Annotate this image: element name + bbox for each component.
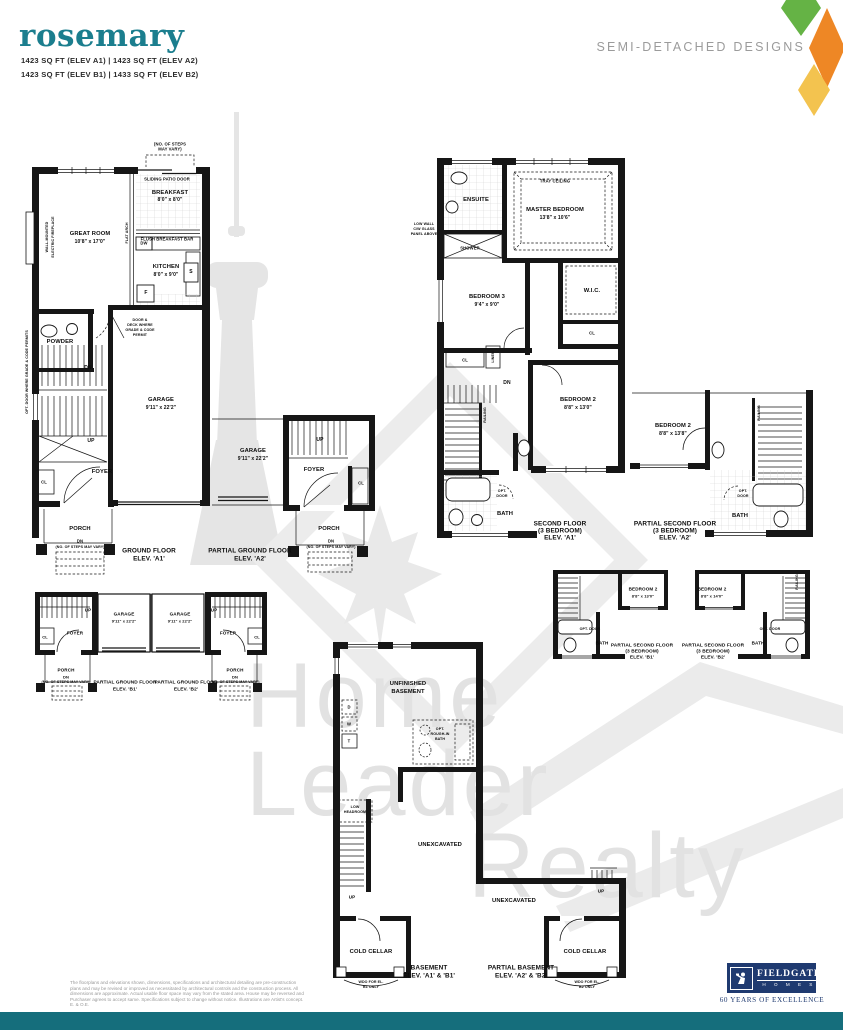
room-dim-great-room: 10'8" x 17'0" [75, 239, 106, 245]
fireplace-note: WALL-MOUNTED [45, 222, 49, 253]
porch-dn-label: DN [63, 675, 69, 680]
room-label-ensuite: ENSUITE [463, 197, 489, 203]
room-dim-bedroom2: 8'8" x 13'8" [659, 431, 687, 437]
rough-in-note: BATH [435, 737, 445, 741]
low-headroom-note: LOW [351, 805, 360, 809]
room-dim-garage: 9'11" x 22'2" [112, 619, 137, 624]
room-dim-bedroom2: 8'8" x 13'0" [564, 405, 592, 411]
room-dim-garage: 9'11" x 22'2" [146, 405, 176, 411]
porch-steps-note: (NO. OF STEPS MAY VARY) [55, 545, 104, 549]
deck-note: GRADE & CODE [125, 328, 154, 332]
wdo-note: WDO FOR EL. [574, 980, 599, 984]
up-label: UP [87, 438, 94, 444]
opt-door-label: DOOR [737, 494, 748, 498]
plan-caption: PARTIAL SECOND FLOOR [682, 644, 744, 649]
room-label-great-room: GREAT ROOM [70, 231, 111, 237]
plan-caption: PARTIAL GROUND FLOOR [208, 548, 291, 555]
room-label-powder: POWDER [47, 339, 74, 345]
low-wall-note: LOW WALL [414, 222, 434, 226]
room-label-bath: BATH [752, 641, 765, 646]
room-label-porch: PORCH [57, 668, 74, 673]
plan-caption: ELEV. 'A2' [234, 556, 266, 563]
tray-ceiling-label: TRAY CEILING [540, 179, 570, 184]
steps-note: MAY VARY) [158, 147, 181, 152]
plan-caption: BASEMENT [411, 965, 448, 972]
opt-door-label: OPT. DOOR [760, 627, 781, 631]
deck-note: PERMIT [133, 333, 147, 337]
up-label: UP [211, 608, 218, 613]
railing-label: RAILING [757, 405, 761, 420]
plan-caption: ELEV. 'B1' [630, 656, 654, 661]
room-label-kitchen: KITCHEN [153, 264, 179, 270]
room-dim-bedroom2: 8'8" x 13'0" [632, 594, 654, 599]
room-label-porch: PORCH [69, 526, 90, 532]
brand-sub: H O M E S [757, 982, 821, 987]
porch-dn-label: DN [328, 539, 334, 544]
plan-caption: SECOND FLOOR [534, 521, 587, 528]
cl-label: CL [42, 635, 48, 640]
brand-tagline: 60 YEARS OF EXCELLENCE [716, 996, 828, 1004]
room-label-cold-cellar: COLD CELLAR [564, 949, 607, 955]
room-label-bath: BATH [596, 641, 609, 646]
room-label-garage: GARAGE [170, 612, 191, 617]
plan-caption: PARTIAL SECOND FLOOR [634, 521, 716, 528]
room-label-foyer: FOYER [304, 467, 324, 473]
flat-arch-label: FLAT ARCH [125, 222, 129, 243]
bottom-teal-bar [0, 1012, 843, 1030]
rough-in-note: ROUGH-IN [431, 732, 450, 736]
plan-caption: ELEV. 'A1' [133, 556, 165, 563]
plan-caption: GROUND FLOOR [122, 548, 176, 555]
cl-label: CL [462, 358, 468, 363]
fieldgate-logo: FIELDGATE H O M E S [727, 963, 816, 993]
cl-label: CL [358, 481, 364, 486]
deck-note: DOOR & [133, 318, 148, 322]
dw-label: DW [140, 241, 147, 246]
room-label-bedroom2: BEDROOM 2 [698, 587, 727, 592]
room-label-porch: PORCH [226, 668, 243, 673]
plan-caption: (3 BEDROOM) [653, 528, 697, 535]
room-label-foyer: FOYER [220, 631, 236, 636]
opt-door-note: OPT. DOOR WHERE GRADE & CODE PERMITS [25, 330, 29, 414]
unexcavated-label: UNEXCAVATED [418, 842, 462, 848]
low-wall-note: PANEL ABOVE [411, 232, 438, 236]
unexcavated-label: UNEXCAVATED [492, 898, 536, 904]
plan-caption: ELEV. 'A1' & 'B1' [403, 973, 455, 980]
room-label-garage: GARAGE [148, 397, 174, 403]
washer-label: W [347, 722, 351, 727]
brand-name: FIELDGATE [757, 969, 821, 981]
room-label-bath: BATH [497, 511, 513, 517]
room-label-breakfast: BREAKFAST [152, 190, 188, 196]
cl-label: CL [254, 635, 260, 640]
plan-caption: PARTIAL BASEMENT [488, 965, 554, 972]
tank-label: T [348, 739, 351, 744]
up-label: UP [85, 608, 92, 613]
room-dim-master: 13'8" x 10'6" [540, 215, 571, 221]
floorplan-sheet: Home Leader Realty rosemary 1423 SQ FT (… [0, 0, 843, 1030]
room-label-garage: GARAGE [114, 612, 135, 617]
plan-caption: PARTIAL GROUND FLOOR [93, 681, 156, 686]
porch-dn-label: DN [77, 539, 83, 544]
shower-label: SHOWER [460, 246, 479, 251]
low-wall-note: C/W GLASS [413, 227, 434, 231]
room-label-unfinished-basement: UNFINISHED [390, 681, 426, 687]
wdo-note: WDO FOR EL. [358, 980, 383, 984]
plan-caption: PARTIAL GROUND FLOOR [154, 681, 217, 686]
railing-label: RAILING [483, 407, 487, 422]
plan-caption: ELEV. 'B2' [174, 688, 198, 693]
room-dim-bedroom3: 9'4" x 9'0" [475, 302, 500, 308]
plan-caption: PARTIAL SECOND FLOOR [611, 644, 673, 649]
low-headroom-note: HEADROOM [344, 810, 366, 814]
opt-door-label: OPT. DOOR [580, 627, 601, 631]
room-label-bedroom2: BEDROOM 2 [629, 587, 658, 592]
room-dim-garage: 9'11" x 22'2" [238, 456, 268, 462]
railing-label: RAILING [795, 574, 799, 589]
cl-label: CL [41, 480, 47, 485]
room-label-bath: BATH [732, 513, 748, 519]
plan-caption: ELEV. 'B2' [701, 656, 725, 661]
dn-label: DN [84, 365, 91, 371]
deck-note: DECK WHERE [127, 323, 153, 327]
stove-label: S [189, 269, 192, 275]
opt-door-label: OPT. [739, 489, 747, 493]
plan-caption: (3 BEDROOM) [625, 650, 658, 655]
plan-caption: ELEV. 'A2' & 'B2' [495, 973, 547, 980]
flush-bar-label: FLUSH BREAKFAST BAR [141, 237, 194, 242]
room-dim-kitchen: 8'0" x 9'0" [154, 272, 179, 278]
opt-door-label: OPT. [498, 489, 506, 493]
plan-caption: ELEV. 'B1' [113, 688, 137, 693]
room-label-foyer: FOYER [67, 631, 83, 636]
room-label-unfinished-basement: BASEMENT [391, 689, 424, 695]
room-dim-bedroom2: 8'8" x 14'0" [701, 594, 723, 599]
linen-label: LINEN [491, 351, 495, 362]
room-dim-garage: 9'11" x 22'2" [168, 619, 193, 624]
plan-caption: (3 BEDROOM) [696, 650, 729, 655]
porch-dn-label: DN [232, 675, 238, 680]
dryer-label: D [347, 705, 350, 710]
plan-caption: ELEV. 'A2' [659, 535, 691, 542]
sliding-door-label: SLIDING PATIO DOOR [144, 177, 190, 182]
porch-steps-note: (NO. OF STEPS MAY VARY) [210, 680, 259, 684]
rough-in-note: OPT. [436, 727, 444, 731]
room-label-porch: PORCH [318, 526, 339, 532]
fridge-label: F [144, 290, 147, 296]
up-label: UP [316, 437, 323, 443]
dn-label: DN [503, 380, 510, 386]
plan-caption: (3 BEDROOM) [538, 528, 582, 535]
room-dim-breakfast: 8'0" x 8'0" [158, 197, 183, 203]
disclaimer-text: The floorplans and elevations shown, dim… [70, 980, 308, 1008]
room-label-garage: GARAGE [240, 448, 266, 454]
builder-icon [730, 967, 753, 990]
plan-caption: ELEV. 'A1' [544, 535, 576, 542]
porch-steps-note: (NO. OF STEPS MAY VARY) [41, 680, 90, 684]
room-label-bedroom2: BEDROOM 2 [560, 397, 596, 403]
room-label-master: MASTER BEDROOM [526, 207, 584, 213]
porch-steps-note: (NO. OF STEPS MAY VARY) [306, 545, 355, 549]
room-label-wic: W.I.C. [584, 288, 600, 294]
room-label-cold-cellar: COLD CELLAR [350, 949, 393, 955]
up-label: UP [349, 895, 356, 900]
room-label-bedroom2: BEDROOM 2 [655, 423, 691, 429]
wdo-note: B1 ONLY [363, 985, 379, 989]
opt-door-label: DOOR [496, 494, 507, 498]
wdo-note: B2 ONLY [579, 985, 595, 989]
fireplace-note: ELECTRIC FIREPLACE [51, 216, 55, 257]
plan-labels: (NO. OF STEPS MAY VARY) SLIDING PATIO DO… [0, 0, 843, 1030]
room-label-bedroom3: BEDROOM 3 [469, 294, 505, 300]
up-label: UP [598, 889, 605, 894]
cl-label: CL [589, 331, 595, 336]
room-label-foyer: FOYER [92, 469, 112, 475]
